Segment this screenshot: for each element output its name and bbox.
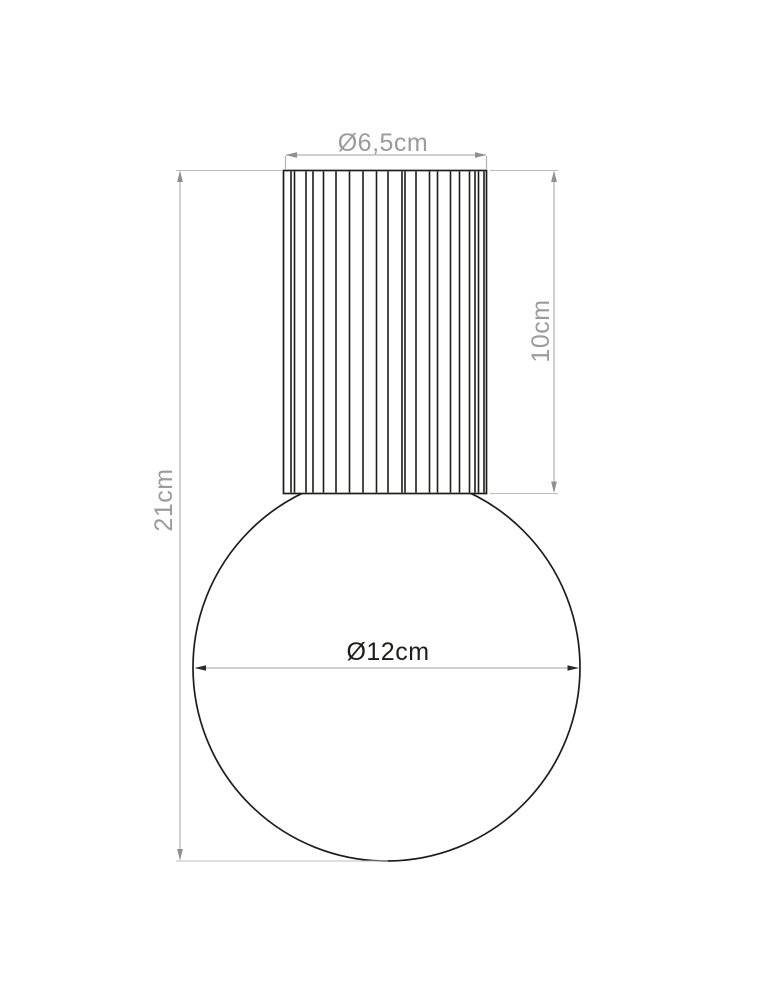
lamp-dimension-diagram: Ø6,5cm 10cm 21cm Ø12cm bbox=[0, 0, 774, 1000]
dim-line-top bbox=[286, 155, 487, 169]
label-top-diameter: Ø6,5cm bbox=[338, 129, 429, 157]
dimension-cylinder-height: 10cm bbox=[527, 171, 557, 494]
dimension-top-diameter: Ø6,5cm bbox=[286, 129, 487, 169]
arrow-down-icon bbox=[177, 849, 183, 861]
arrow-up-icon bbox=[177, 171, 183, 183]
arrow-right-icon bbox=[475, 152, 487, 158]
label-total-height: 21cm bbox=[150, 468, 178, 531]
dimension-total-height: 21cm bbox=[150, 171, 183, 861]
arrow-left-icon bbox=[286, 152, 298, 158]
label-globe-diameter: Ø12cm bbox=[346, 638, 429, 666]
arrow-down-icon bbox=[551, 482, 557, 494]
technical-drawing-page: Ø6,5cm 10cm 21cm Ø12cm bbox=[0, 0, 774, 1000]
lamp-object bbox=[193, 171, 580, 862]
lamp-cylinder bbox=[284, 171, 487, 494]
label-cylinder-height: 10cm bbox=[527, 299, 555, 362]
arrow-up-icon bbox=[551, 171, 557, 183]
